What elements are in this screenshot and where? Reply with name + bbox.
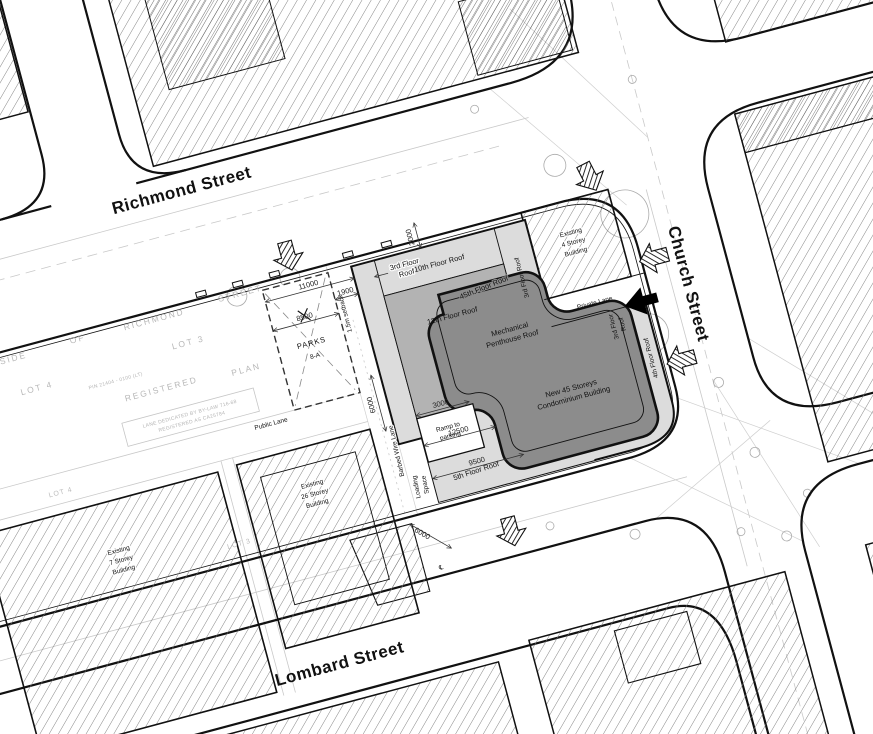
site-plan-drawing: 11000 1900 8500 2000 3000 6000 6000 1250… — [0, 0, 873, 734]
existing-26-storey-footprint — [237, 429, 419, 648]
survey-pin: PIN 21404 - 0100 (LT) — [88, 371, 143, 391]
entrance-arrow-church-lower — [663, 342, 699, 378]
survey-lot4-b: LOT 4 — [48, 486, 73, 499]
hatched-building-ne — [628, 0, 873, 42]
entrance-arrow-church-upper — [636, 240, 672, 276]
site-plan-svg: 11000 1900 8500 2000 3000 6000 6000 1250… — [0, 0, 873, 734]
hatched-building-se — [866, 492, 873, 734]
existing-7-storey-footprint — [0, 472, 277, 734]
centerline-symbol: ℄ — [438, 564, 445, 572]
dim-6000-upper: 6000 — [365, 396, 378, 414]
survey-lot4: LOT 4 — [19, 379, 54, 397]
survey-lot3: LOT 3 — [171, 333, 206, 351]
hatched-building-south-2 — [529, 572, 861, 734]
entrance-arrow-richmond — [270, 238, 306, 274]
entrance-arrow-lombard — [493, 514, 529, 550]
loading-label-2: Space — [420, 475, 430, 495]
hatched-building-west-edge — [0, 0, 28, 132]
survey-plan: PLAN — [230, 360, 262, 377]
public-lane-label: Public Lane — [254, 416, 289, 432]
hatched-building-nw-inner-2 — [458, 0, 572, 75]
